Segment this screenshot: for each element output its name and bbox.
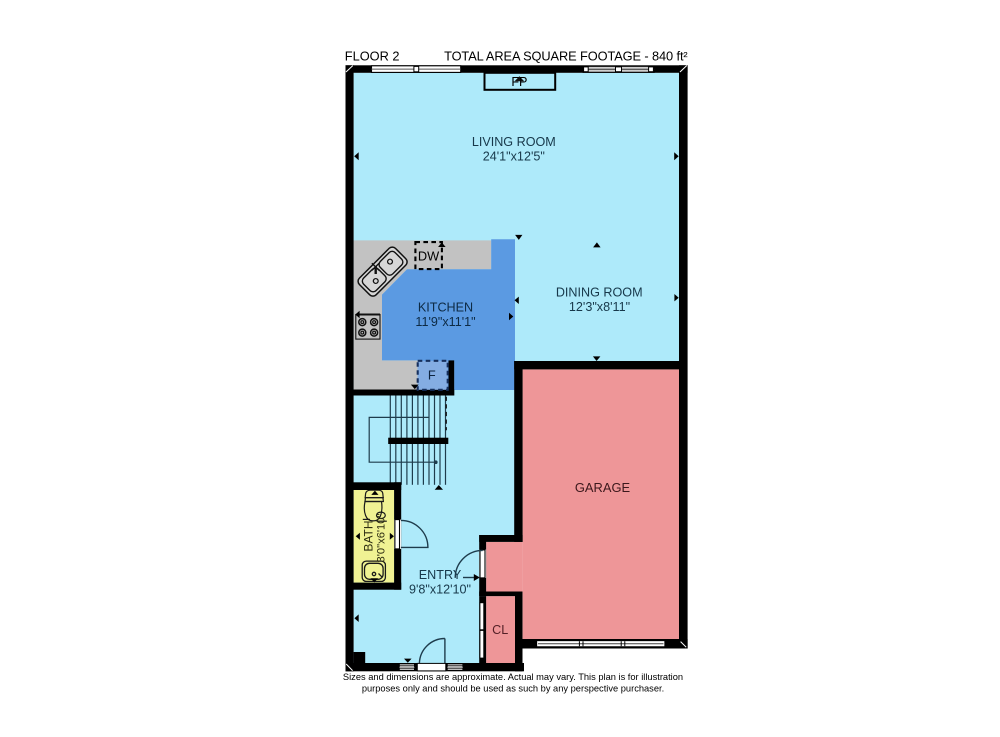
svg-text:3'0"x6'10": 3'0"x6'10" — [375, 514, 387, 563]
svg-text:DINING ROOM: DINING ROOM — [556, 286, 643, 300]
svg-text:12'3"x8'11": 12'3"x8'11" — [569, 300, 630, 314]
svg-text:FLOOR 2: FLOOR 2 — [345, 48, 400, 63]
svg-text:BATH: BATH — [362, 520, 376, 551]
svg-text:GARAGE: GARAGE — [575, 480, 631, 495]
svg-text:purposes only and should be us: purposes only and should be used as such… — [362, 684, 664, 694]
svg-text:LIVING ROOM: LIVING ROOM — [472, 135, 556, 149]
svg-text:11'9"x11'1": 11'9"x11'1" — [415, 315, 475, 329]
svg-text:24'1"x12'5": 24'1"x12'5" — [483, 150, 545, 164]
svg-text:FP: FP — [511, 75, 527, 89]
svg-text:ENTRY: ENTRY — [419, 568, 462, 582]
svg-text:CL: CL — [492, 623, 508, 637]
svg-text:TOTAL AREA SQUARE FOOTAGE - 84: TOTAL AREA SQUARE FOOTAGE - 840 ft² — [444, 48, 688, 63]
svg-text:Sizes and dimensions are appro: Sizes and dimensions are approximate. Ac… — [343, 672, 683, 682]
svg-text:9'8"x12'10": 9'8"x12'10" — [409, 583, 471, 597]
svg-text:DW: DW — [418, 248, 440, 263]
svg-text:KITCHEN: KITCHEN — [418, 301, 473, 315]
svg-text:F: F — [428, 367, 436, 382]
